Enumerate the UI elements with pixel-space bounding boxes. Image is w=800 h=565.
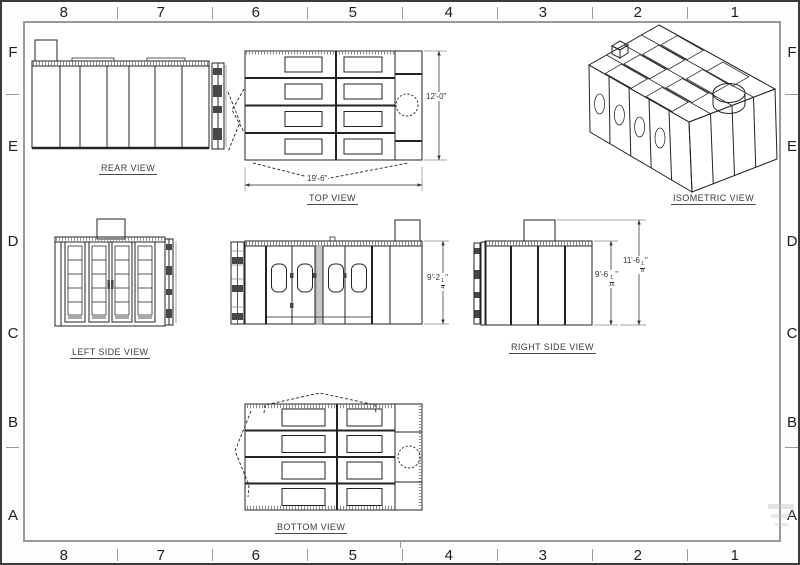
dim-top-depth: 12'-0"	[425, 92, 447, 101]
top-view-drawing	[228, 44, 463, 199]
top-width-dimension	[245, 167, 422, 191]
zone-tick	[212, 549, 213, 561]
zone-tick	[402, 549, 403, 561]
top-depth-dimension	[424, 51, 447, 160]
zone-label-right: B	[785, 414, 799, 431]
watermark-smudge	[768, 504, 794, 509]
left-side-view-label: LEFT SIDE VIEW	[70, 347, 150, 359]
zone-tick	[687, 549, 688, 561]
zone-tick	[592, 549, 593, 561]
top-fan-circle	[396, 94, 418, 116]
right-side-view-label: RIGHT SIDE VIEW	[509, 342, 596, 354]
zone-tick	[402, 7, 403, 19]
zone-label-top: 2	[634, 4, 643, 21]
top-fold-line-bottom	[253, 163, 408, 180]
zone-label-top: 6	[252, 4, 261, 21]
zone-tick	[497, 549, 498, 561]
rear-exhaust-stack	[35, 40, 57, 61]
drawing-sheet: 8 7 6 5 4 3 2 1 8 7 6 5 4 3 2 1 F E D C …	[0, 0, 800, 565]
right-door-track	[474, 242, 486, 325]
zone-label-top: 4	[445, 4, 454, 21]
bottom-view-drawing	[226, 387, 476, 537]
zone-label-bottom: 4	[445, 547, 454, 564]
zone-label-right: C	[785, 325, 799, 342]
watermark-smudge	[774, 523, 788, 526]
top-view-label: TOP VIEW	[307, 193, 358, 205]
zone-label-top: 7	[157, 4, 166, 21]
zone-tick	[212, 7, 213, 19]
dim-front-height: 9'-214"	[426, 273, 449, 291]
zone-label-bottom: 8	[60, 547, 69, 564]
right-wall-panels	[485, 241, 592, 325]
bottom-fold-line-top	[264, 393, 376, 413]
zone-label-top: 1	[731, 4, 740, 21]
bottom-floor-grid	[245, 404, 395, 510]
dim-top-width: 19'-6"	[306, 174, 328, 183]
dim-right-wall-height: 9'-6116"	[594, 270, 619, 288]
zone-tick	[497, 7, 498, 19]
rear-wall-panels	[32, 66, 209, 148]
zone-label-bottom: 6	[252, 547, 261, 564]
rear-roofline	[32, 58, 209, 66]
watermark-smudge	[771, 514, 791, 518]
zone-label-right: E	[785, 138, 799, 155]
zone-tick	[117, 7, 118, 19]
zone-tick	[592, 7, 593, 19]
iso-front-face-doors	[589, 65, 692, 192]
bottom-plenum-section	[395, 404, 422, 510]
isometric-view-label: ISOMETRIC VIEW	[671, 193, 756, 205]
top-fold-line-left	[232, 89, 244, 132]
zone-label-right: D	[785, 233, 799, 250]
bottom-view-label: BOTTOM VIEW	[275, 522, 347, 534]
zone-label-left: A	[6, 507, 20, 524]
zone-label-left: B	[6, 414, 20, 431]
isometric-view-drawing	[558, 20, 783, 205]
left-door-handle	[111, 280, 114, 289]
bottom-fan-circle	[398, 446, 420, 468]
iso-small-stack	[612, 41, 628, 58]
top-plenum-section	[395, 51, 422, 160]
dim-right-overall-height: 11'-618"	[622, 256, 649, 274]
right-exhaust-stack	[524, 220, 555, 241]
rear-door-track	[212, 63, 226, 149]
zone-tick	[307, 549, 308, 561]
zone-tick	[785, 94, 798, 95]
right-side-view-drawing	[470, 212, 675, 352]
left-exhaust-stack	[97, 219, 125, 239]
zone-tick	[687, 7, 688, 19]
zone-label-left: F	[6, 44, 20, 61]
zone-tick	[307, 7, 308, 19]
zone-tick	[785, 447, 798, 448]
left-door-track	[165, 239, 176, 325]
zone-label-bottom: 2	[634, 547, 643, 564]
zone-label-bottom: 3	[539, 547, 548, 564]
zone-label-left: E	[6, 138, 20, 155]
front-exhaust-stack	[395, 220, 420, 241]
front-ladder-column	[231, 242, 244, 324]
zone-label-top: 5	[349, 4, 358, 21]
zone-tick	[400, 541, 401, 548]
iso-right-face-panels	[689, 89, 777, 192]
zone-label-left: D	[6, 233, 20, 250]
rear-view-drawing	[27, 30, 247, 175]
top-roof-grid	[245, 51, 395, 160]
rear-view-label: REAR VIEW	[99, 163, 157, 175]
left-side-view-drawing	[50, 214, 185, 339]
zone-label-top: 8	[60, 4, 69, 21]
zone-tick	[6, 94, 19, 95]
zone-label-left: C	[6, 325, 20, 342]
zone-label-right: F	[785, 44, 799, 61]
zone-tick	[6, 447, 19, 448]
zone-label-bottom: 1	[731, 547, 740, 564]
zone-label-bottom: 7	[157, 547, 166, 564]
zone-label-top: 3	[539, 4, 548, 21]
iso-exhaust-cylinder	[713, 84, 745, 114]
zone-tick	[117, 549, 118, 561]
zone-label-bottom: 5	[349, 547, 358, 564]
left-door-handle	[108, 280, 111, 289]
iso-roof	[589, 25, 775, 122]
left-doors	[65, 242, 155, 322]
